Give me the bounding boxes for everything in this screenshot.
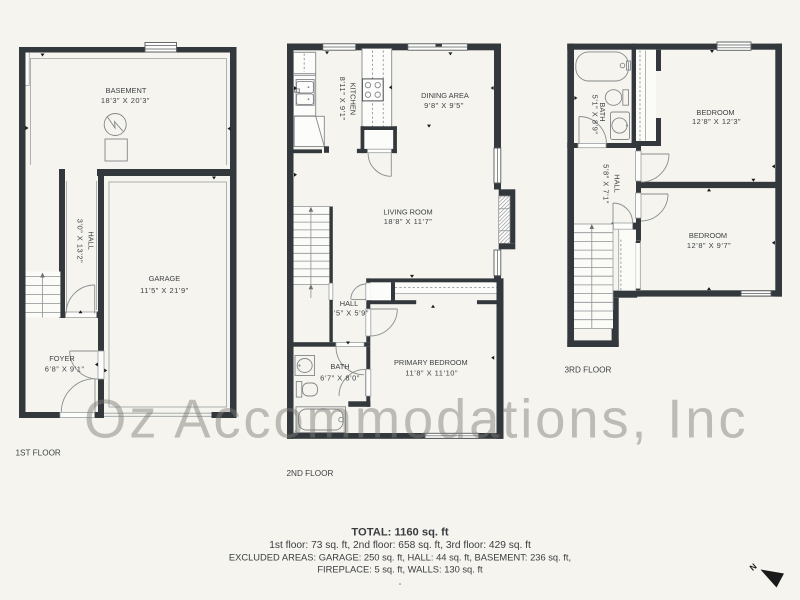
svg-text:KITCHEN: KITCHEN bbox=[348, 83, 357, 115]
svg-text:12’8” X 12’3”: 12’8” X 12’3” bbox=[692, 117, 741, 126]
svg-text:5’8” X 7’1”: 5’8” X 7’1” bbox=[602, 164, 611, 204]
svg-text:6’7” X 8’0”: 6’7” X 8’0” bbox=[320, 374, 360, 383]
svg-text:HALL: HALL bbox=[340, 299, 359, 308]
svg-text:3’5” X 5’9”: 3’5” X 5’9” bbox=[329, 309, 369, 318]
svg-text:18’3” X 20’3”: 18’3” X 20’3” bbox=[101, 96, 150, 105]
svg-text:FOYER: FOYER bbox=[49, 354, 74, 363]
svg-text:LIVING ROOM: LIVING ROOM bbox=[383, 208, 432, 217]
svg-text:2ND FLOOR: 2ND FLOOR bbox=[287, 469, 334, 478]
svg-text:11’5” X 21’9”: 11’5” X 21’9” bbox=[140, 286, 188, 295]
svg-text:11’8” X 11’10”: 11’8” X 11’10” bbox=[405, 369, 458, 378]
svg-text:BASEMENT: BASEMENT bbox=[106, 86, 147, 95]
svg-text:18’8” X 11’7”: 18’8” X 11’7” bbox=[384, 217, 432, 226]
svg-text:FIREPLACE: 5 sq. ft, WALLS: 13: FIREPLACE: 5 sq. ft, WALLS: 130 sq. ft bbox=[317, 564, 483, 574]
svg-text:Oz Accommodations, Inc: Oz Accommodations, Inc bbox=[84, 389, 748, 450]
svg-text:HALL: HALL bbox=[613, 174, 622, 193]
svg-text:9’8” X 9’5”: 9’8” X 9’5” bbox=[424, 101, 464, 110]
svg-text:TOTAL: 1160 sq. ft: TOTAL: 1160 sq. ft bbox=[351, 526, 448, 538]
svg-text:BEDROOM: BEDROOM bbox=[696, 108, 734, 117]
svg-text:EXCLUDED AREAS: GARAGE: 250 sq: EXCLUDED AREAS: GARAGE: 250 sq. ft, HALL… bbox=[229, 552, 571, 562]
svg-text:3RD FLOOR: 3RD FLOOR bbox=[565, 366, 612, 375]
svg-text:GARAGE: GARAGE bbox=[149, 274, 181, 283]
svg-text:12’8” X 9’7”: 12’8” X 9’7” bbox=[687, 241, 731, 250]
svg-text:PRIMARY BEDROOM: PRIMARY BEDROOM bbox=[394, 358, 468, 367]
svg-text:BATH: BATH bbox=[330, 362, 349, 371]
svg-text:6’8” X 9’1”: 6’8” X 9’1” bbox=[45, 365, 85, 374]
svg-text:HALL: HALL bbox=[87, 231, 96, 250]
svg-text:1st floor: 73 sq. ft, 2nd floo: 1st floor: 73 sq. ft, 2nd floor: 658 sq.… bbox=[269, 540, 531, 551]
svg-text:DINING AREA: DINING AREA bbox=[421, 91, 469, 100]
svg-text:5’1” X 8’9”: 5’1” X 8’9” bbox=[591, 95, 600, 135]
svg-text:1ST FLOOR: 1ST FLOOR bbox=[16, 449, 61, 458]
svg-text:8’11” X 9’1”: 8’11” X 9’1” bbox=[338, 77, 347, 121]
svg-text:3’0” X 13’2”: 3’0” X 13’2” bbox=[76, 219, 85, 263]
svg-text:BEDROOM: BEDROOM bbox=[689, 231, 727, 240]
